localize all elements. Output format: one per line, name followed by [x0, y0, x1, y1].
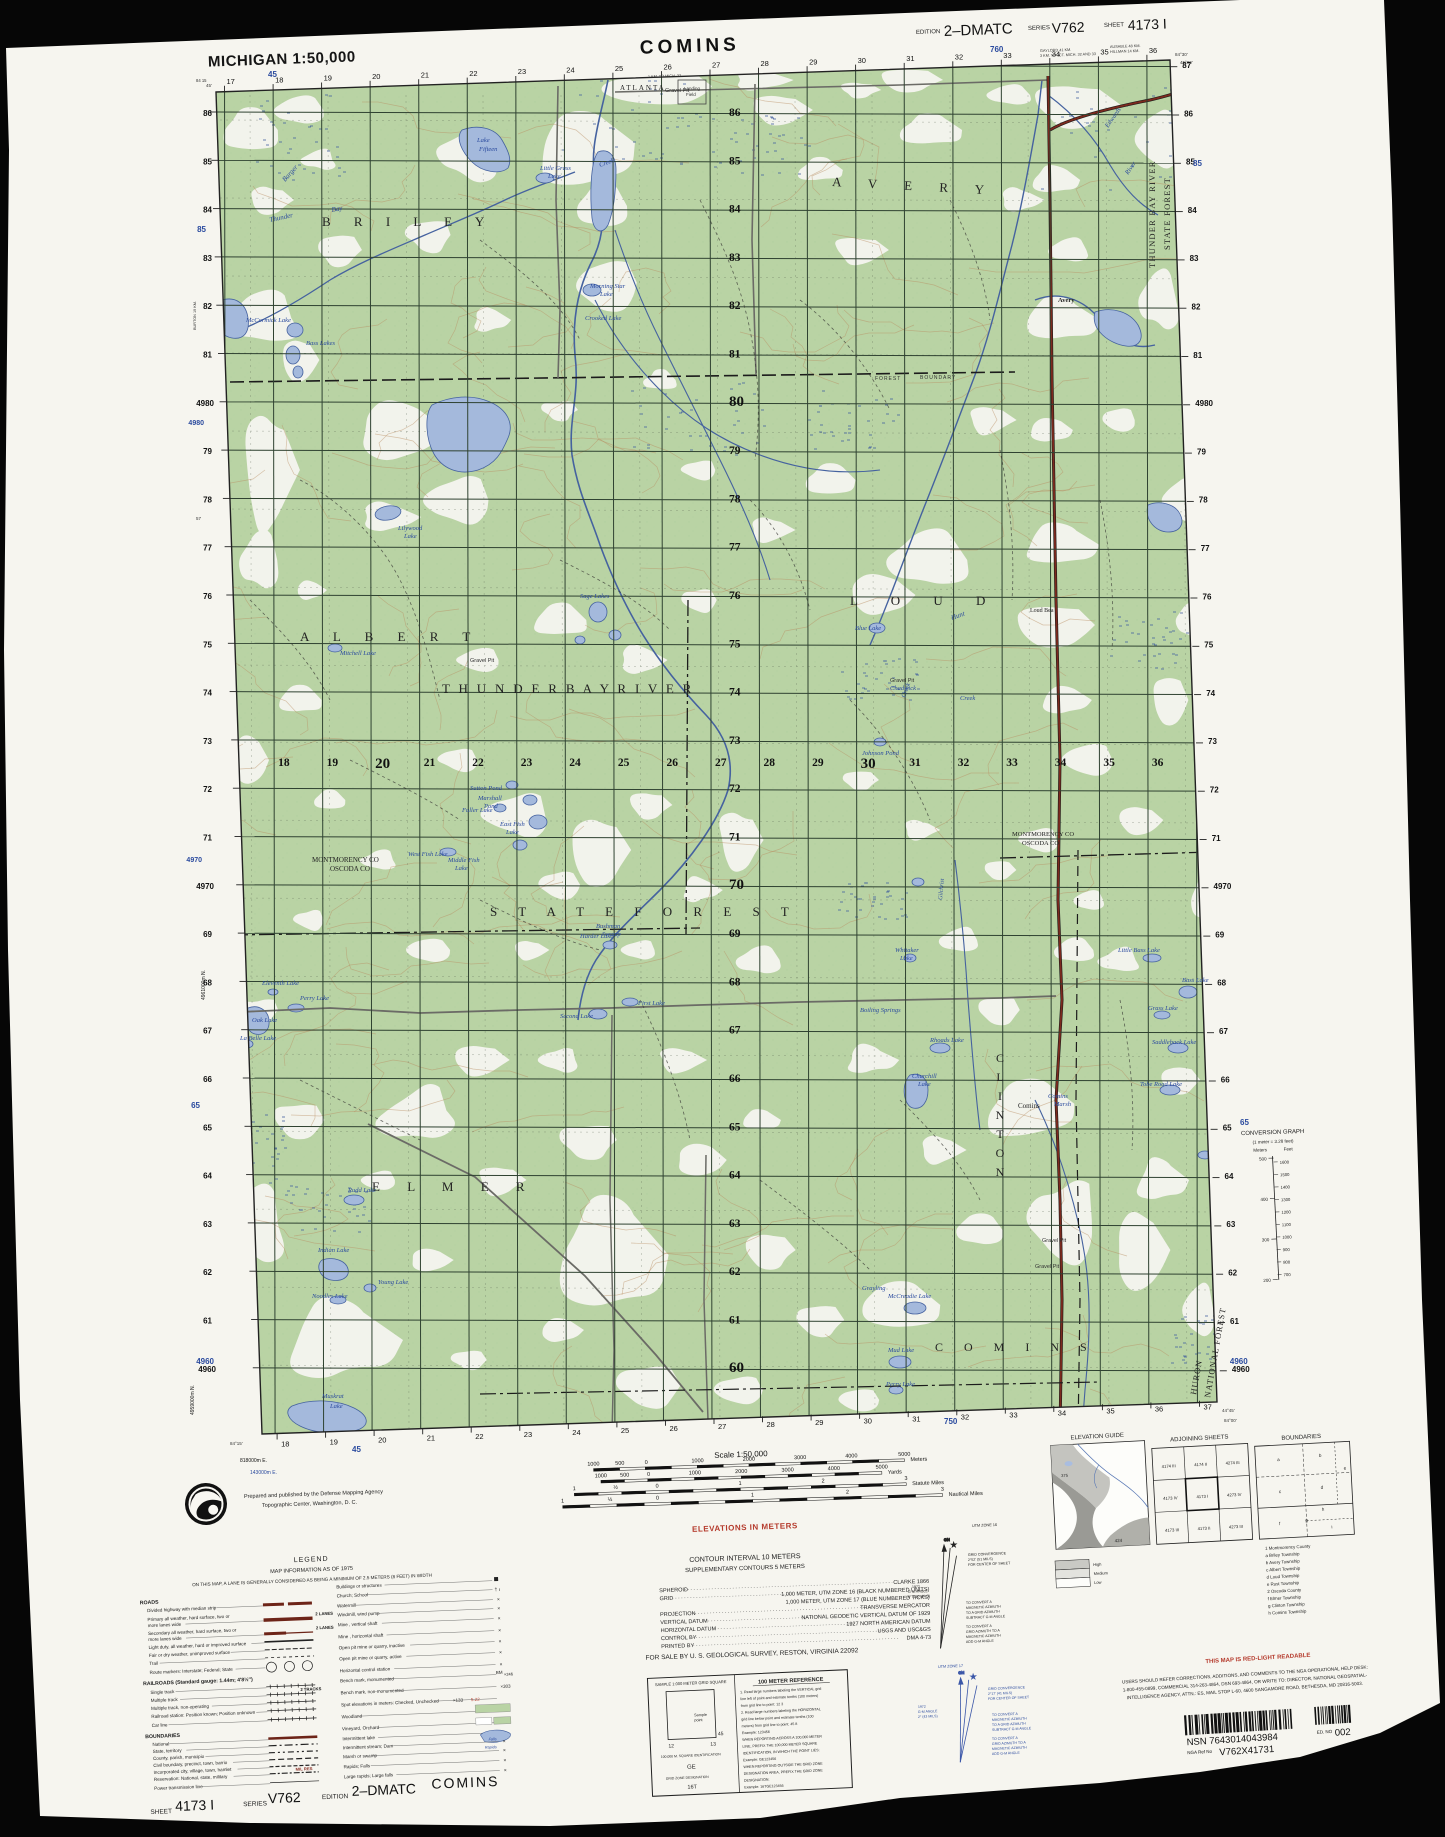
svg-text:×: ×	[503, 1758, 506, 1764]
svg-text:Second Lake: Second Lake	[560, 1013, 593, 1020]
svg-text:63: 63	[203, 1220, 212, 1229]
svg-text:Meters: Meters	[910, 1457, 927, 1464]
svg-text:ATLANTA: ATLANTA	[620, 84, 666, 92]
svg-text:COMINS: COMINS	[431, 1773, 500, 1792]
svg-text:65: 65	[1223, 1124, 1232, 1133]
svg-text:71: 71	[729, 832, 741, 844]
svg-text:85: 85	[203, 157, 212, 166]
svg-text:67: 67	[729, 1025, 741, 1037]
svg-text:23: 23	[521, 757, 533, 769]
svg-text:25: 25	[618, 757, 630, 769]
svg-text:4274 III: 4274 III	[1226, 1460, 1240, 1466]
svg-text:83: 83	[729, 252, 741, 264]
svg-text:Scale 1:50,000: Scale 1:50,000	[714, 1449, 768, 1460]
svg-text:High: High	[1093, 1562, 1101, 1567]
svg-text:45': 45'	[206, 83, 212, 88]
svg-text:20: 20	[378, 1436, 386, 1445]
svg-text:Watermill: Watermill	[337, 1603, 356, 1609]
svg-text:45: 45	[718, 1731, 724, 1737]
svg-text:B R I L E Y: B R I L E Y	[322, 214, 494, 229]
svg-text:73: 73	[729, 735, 741, 747]
svg-text:73: 73	[1208, 737, 1217, 746]
svg-text:64: 64	[203, 1172, 212, 1181]
svg-text:Gravel Pit: Gravel Pit	[1042, 1238, 1067, 1244]
svg-text:Little Grass: Little Grass	[539, 165, 571, 172]
svg-text:4000: 4000	[845, 1453, 857, 1459]
svg-text:25: 25	[615, 64, 623, 73]
svg-text:80: 80	[729, 394, 744, 410]
svg-text:Lake: Lake	[505, 829, 519, 836]
svg-text:×: ×	[499, 1639, 502, 1645]
svg-text:800: 800	[1283, 1259, 1291, 1264]
svg-text:60: 60	[729, 1360, 744, 1376]
svg-text:424: 424	[1115, 1538, 1123, 1543]
svg-text:83: 83	[203, 254, 212, 263]
svg-text:33: 33	[1003, 51, 1011, 60]
svg-text:1000: 1000	[691, 1458, 703, 1464]
svg-text:83: 83	[1190, 254, 1199, 263]
svg-text:82: 82	[1192, 303, 1201, 312]
svg-text:Boiling Springs: Boiling Springs	[860, 1007, 901, 1014]
svg-text:26: 26	[670, 1424, 678, 1433]
svg-text:Sample: Sample	[694, 1713, 707, 1718]
svg-text:35: 35	[1106, 1407, 1114, 1416]
svg-text:PROJECTION: PROJECTION	[660, 1611, 696, 1618]
svg-text:33: 33	[1006, 757, 1018, 769]
svg-text:75: 75	[203, 640, 212, 649]
svg-text:Lake: Lake	[403, 533, 417, 540]
svg-text:400: 400	[1260, 1197, 1268, 1202]
svg-text:2: 2	[846, 1490, 849, 1496]
svg-text:GE: GE	[687, 1764, 696, 1770]
svg-text:1000: 1000	[689, 1470, 701, 1476]
svg-text:4273 III: 4273 III	[1229, 1524, 1243, 1530]
svg-text:GN: GN	[944, 1537, 950, 1542]
svg-text:84°15': 84°15'	[230, 1441, 243, 1446]
svg-text:EDITION: EDITION	[322, 1793, 349, 1801]
svg-text:18: 18	[278, 757, 290, 769]
svg-text:DMA 4-73: DMA 4-73	[907, 1635, 932, 1642]
svg-text:13: 13	[710, 1741, 716, 1747]
svg-text:Mitchell Lake: Mitchell Lake	[339, 650, 376, 657]
svg-text:32: 32	[955, 53, 963, 62]
svg-text:×: ×	[497, 1597, 500, 1603]
svg-text:4970: 4970	[196, 882, 214, 891]
svg-text:Bass Lake: Bass Lake	[1182, 977, 1209, 984]
svg-text:86: 86	[203, 109, 212, 118]
svg-text:×246: ×246	[504, 1671, 514, 1676]
svg-text:82: 82	[729, 300, 741, 312]
svg-text:85: 85	[729, 155, 741, 167]
svg-text:Marshall: Marshall	[477, 795, 502, 802]
svg-text:75: 75	[729, 638, 741, 650]
svg-text:McCormick Lake: McCormick Lake	[245, 317, 291, 324]
svg-text:29: 29	[812, 757, 824, 769]
svg-text:Mud Lake: Mud Lake	[887, 1347, 914, 1354]
svg-text:76: 76	[1203, 592, 1212, 601]
svg-text:27: 27	[712, 61, 720, 70]
svg-text:LEGEND: LEGEND	[294, 1556, 329, 1564]
svg-text:500: 500	[1259, 1156, 1267, 1161]
svg-text:79: 79	[729, 445, 741, 457]
svg-text:SERIES: SERIES	[1028, 25, 1050, 32]
svg-text:½: ½	[613, 1484, 618, 1491]
svg-text:500: 500	[620, 1472, 629, 1478]
svg-text:69: 69	[1215, 930, 1224, 939]
svg-text:3: 3	[941, 1487, 944, 1493]
svg-text:×: ×	[503, 1748, 506, 1754]
svg-text:Sage Lakes: Sage Lakes	[580, 593, 610, 600]
svg-text:64: 64	[729, 1170, 741, 1182]
svg-text:1972: 1972	[912, 1585, 920, 1589]
svg-text:Indian Lake: Indian Lake	[317, 1247, 349, 1254]
svg-text:5.22: 5.22	[471, 1697, 480, 1702]
svg-text:74: 74	[729, 687, 741, 699]
svg-text:4980: 4980	[196, 399, 214, 408]
svg-text:32: 32	[961, 1412, 969, 1421]
svg-text:First Lake: First Lake	[637, 1000, 665, 1007]
svg-text:FOREST: FOREST	[875, 376, 901, 382]
svg-text:500: 500	[615, 1461, 624, 1467]
svg-text:Lake: Lake	[917, 1081, 931, 1088]
svg-text:Creek: Creek	[960, 695, 975, 702]
svg-text:BURTON 19 KM.: BURTON 19 KM.	[193, 301, 197, 330]
svg-text:Saddleback Lake: Saddleback Lake	[1152, 1039, 1196, 1046]
svg-text:4174 III: 4174 III	[1162, 1463, 1176, 1469]
svg-text:Crooked Lake: Crooked Lake	[585, 315, 622, 322]
svg-text:Little Bass Lake: Little Bass Lake	[1117, 947, 1160, 954]
svg-text:1: 1	[751, 1493, 754, 1499]
svg-text:21: 21	[427, 1434, 435, 1443]
svg-text:65: 65	[1240, 1118, 1249, 1127]
svg-text:61: 61	[729, 1315, 741, 1327]
svg-text:Nautical Miles: Nautical Miles	[948, 1491, 983, 1498]
svg-text:4961000m N.: 4961000m N.	[201, 970, 207, 1000]
svg-text:Young Lake: Young Lake	[378, 1279, 408, 1286]
svg-text:26: 26	[667, 757, 679, 769]
svg-text:E L M E R: E L M E R	[372, 1179, 537, 1194]
svg-text:point: point	[694, 1718, 703, 1722]
svg-text:78: 78	[729, 493, 741, 505]
svg-text:79: 79	[203, 447, 212, 456]
svg-text:Feet: Feet	[1284, 1146, 1294, 1151]
svg-text:×: ×	[499, 1650, 502, 1656]
svg-text:68: 68	[729, 976, 741, 988]
svg-text:22: 22	[472, 757, 484, 769]
svg-text:900: 900	[1283, 1247, 1291, 1252]
svg-text:4173 IV: 4173 IV	[1163, 1495, 1178, 1501]
svg-text:71: 71	[1212, 834, 1221, 843]
svg-text:66: 66	[1221, 1075, 1230, 1084]
svg-text:L: L	[996, 1070, 1003, 1084]
svg-text:Muskrat: Muskrat	[321, 1393, 344, 1400]
svg-text:Comins: Comins	[1018, 1102, 1040, 1110]
svg-text:2 LANES: 2 LANES	[316, 1625, 334, 1631]
svg-text:4960: 4960	[198, 1365, 216, 1374]
svg-text:Noodles Lake: Noodles Lake	[311, 1293, 348, 1300]
svg-text:24: 24	[569, 757, 581, 769]
svg-text:Grayling: Grayling	[862, 1285, 886, 1292]
svg-text:1000: 1000	[587, 1461, 599, 1467]
svg-text:1200: 1200	[1281, 1209, 1291, 1214]
svg-text:36: 36	[1155, 1405, 1163, 1414]
svg-text:×133: ×133	[453, 1697, 464, 1702]
svg-text:GRID: GRID	[659, 1596, 673, 1602]
svg-text:74: 74	[1206, 689, 1215, 698]
svg-text:Sutton Pond: Sutton Pond	[470, 785, 503, 792]
svg-text:Rapids: Rapids	[485, 1745, 497, 1749]
svg-text:30: 30	[861, 756, 876, 772]
svg-text:Morning Star: Morning Star	[589, 283, 626, 290]
svg-text:24: 24	[566, 66, 574, 75]
svg-text:O: O	[996, 1146, 1005, 1160]
svg-text:72: 72	[1210, 786, 1219, 795]
svg-text:Lake: Lake	[476, 137, 490, 144]
svg-text:Car line: Car line	[152, 1722, 168, 1728]
svg-text:1000: 1000	[595, 1473, 607, 1479]
svg-text:18: 18	[281, 1440, 289, 1449]
svg-text:4173 I: 4173 I	[175, 1796, 215, 1814]
svg-text:31: 31	[906, 54, 914, 63]
svg-text:Comins: Comins	[1048, 1093, 1068, 1100]
svg-text:21: 21	[421, 70, 429, 79]
svg-text:19: 19	[327, 757, 339, 769]
svg-text:750: 750	[944, 1417, 958, 1426]
svg-text:Gravel Pit: Gravel Pit	[890, 678, 915, 684]
svg-text:63: 63	[1226, 1220, 1235, 1229]
svg-text:81: 81	[203, 351, 212, 360]
svg-text:28: 28	[761, 59, 769, 68]
svg-text:Gravel Pit: Gravel Pit	[665, 88, 690, 94]
svg-text:SHEET: SHEET	[1104, 22, 1125, 29]
svg-text:Lake: Lake	[454, 865, 468, 872]
svg-text:0: 0	[645, 1460, 648, 1466]
svg-text:26: 26	[664, 62, 672, 71]
svg-text:79: 79	[1197, 447, 1206, 456]
svg-text:0: 0	[647, 1472, 650, 1478]
svg-text:Bushman: Bushman	[596, 923, 620, 930]
svg-text:½: ½	[608, 1496, 613, 1503]
svg-text:4173 II: 4173 II	[1197, 1526, 1210, 1532]
svg-text:68: 68	[1217, 979, 1226, 988]
svg-text:1: 1	[561, 1499, 564, 1505]
svg-text:COMINS: COMINS	[639, 34, 740, 58]
svg-text:V762: V762	[268, 1789, 302, 1806]
svg-text:West Fish Lake: West Fish Lake	[408, 851, 448, 858]
svg-text:34: 34	[1058, 1409, 1066, 1418]
svg-text:20: 20	[375, 756, 390, 772]
svg-text:61: 61	[1230, 1317, 1239, 1326]
svg-text:Chadwick: Chadwick	[890, 685, 916, 692]
svg-text:84: 84	[203, 206, 212, 215]
svg-text:12: 12	[668, 1743, 674, 1749]
svg-text:Tobe Road Lake: Tobe Road Lake	[1140, 1081, 1182, 1088]
svg-text:1100: 1100	[1282, 1222, 1292, 1227]
svg-text:Yards: Yards	[888, 1469, 902, 1475]
svg-text:76: 76	[203, 592, 212, 601]
svg-text:818000m E.: 818000m E.	[240, 1458, 267, 1464]
svg-text:† ı: † ı	[494, 1587, 500, 1593]
svg-text:81: 81	[729, 349, 741, 361]
svg-text:1300: 1300	[1281, 1197, 1291, 1202]
svg-text:4960: 4960	[1232, 1365, 1250, 1374]
svg-text:Fuller Lake: Fuller Lake	[461, 807, 493, 814]
svg-text:La Belle Lake: La Belle Lake	[239, 1035, 276, 1042]
svg-text:78: 78	[203, 495, 212, 504]
svg-text:30: 30	[858, 56, 866, 65]
svg-text:Loud Bea: Loud Bea	[1030, 608, 1054, 614]
svg-text:69: 69	[729, 928, 741, 940]
svg-text:84°30': 84°30'	[1175, 52, 1188, 57]
svg-text:74: 74	[203, 689, 212, 698]
svg-text:×: ×	[498, 1628, 501, 1634]
svg-text:85: 85	[1193, 159, 1202, 168]
svg-text:33: 33	[1009, 1410, 1017, 1419]
svg-text:27: 27	[718, 1422, 726, 1431]
svg-text:Oak Lake: Oak Lake	[252, 1017, 277, 1024]
svg-text:2 TRACKS: 2 TRACKS	[300, 1686, 321, 1692]
svg-text:21: 21	[424, 757, 436, 769]
svg-text:84 15: 84 15	[196, 78, 207, 83]
svg-text:2–DMATC: 2–DMATC	[351, 1780, 416, 1799]
svg-text:71: 71	[203, 834, 212, 843]
svg-text:4980: 4980	[1195, 399, 1213, 408]
svg-text:4959000m N.: 4959000m N.	[190, 1385, 196, 1415]
svg-text:77: 77	[1201, 544, 1210, 553]
svg-text:East Fish: East Fish	[499, 821, 525, 828]
svg-text:Bass Lakes: Bass Lakes	[306, 340, 336, 347]
svg-text:29: 29	[809, 57, 817, 66]
svg-text:2: 2	[821, 1478, 824, 1484]
svg-text:C O M I N S: C O M I N S	[935, 1340, 1096, 1354]
svg-text:L O U D: L O U D	[850, 593, 1000, 608]
svg-text:45: 45	[268, 70, 277, 79]
svg-text:64: 64	[1225, 1172, 1234, 1181]
svg-text:Swamp: Swamp	[602, 931, 622, 938]
svg-text:×: ×	[498, 1616, 501, 1622]
svg-text:Middle Fish: Middle Fish	[447, 857, 480, 864]
svg-text:1972: 1972	[918, 1705, 926, 1709]
svg-text:62: 62	[1228, 1269, 1237, 1278]
svg-text:65: 65	[729, 1121, 741, 1133]
svg-text:17: 17	[227, 77, 235, 86]
svg-text:1: 1	[573, 1486, 576, 1492]
svg-text:25: 25	[621, 1426, 629, 1435]
svg-text:72: 72	[203, 785, 212, 794]
svg-text:MONTMORENCY CO: MONTMORENCY CO	[312, 856, 379, 864]
svg-text:Low: Low	[1094, 1580, 1102, 1585]
svg-text:2 LANES: 2 LANES	[315, 1611, 333, 1617]
svg-text:0: 0	[656, 1496, 659, 1502]
svg-text:65: 65	[191, 1101, 200, 1110]
svg-text:Woodland: Woodland	[341, 1714, 362, 1720]
svg-text:V762: V762	[1052, 19, 1086, 36]
svg-text:23: 23	[524, 1430, 532, 1439]
svg-text:T H U N D E R B A Y R I: T H U N D E R B A Y R I V E R	[442, 681, 694, 696]
svg-text:Fifteen: Fifteen	[478, 146, 497, 153]
svg-text:ROADS: ROADS	[140, 1600, 159, 1607]
svg-text:4000: 4000	[828, 1466, 840, 1472]
svg-text:28: 28	[764, 757, 776, 769]
svg-text:1500: 1500	[1280, 1172, 1290, 1177]
svg-text:GN: GN	[958, 1670, 964, 1675]
svg-text:760: 760	[990, 45, 1004, 54]
svg-text:Blue Lake: Blue Lake	[855, 625, 881, 632]
svg-text:T: T	[996, 1127, 1004, 1141]
svg-text:44°45': 44°45'	[1222, 1408, 1235, 1413]
svg-text:McCreadie Lake: McCreadie Lake	[887, 1293, 931, 1300]
svg-text:Gravel Pit: Gravel Pit	[470, 658, 495, 664]
svg-text:84: 84	[729, 204, 741, 216]
svg-text:5000: 5000	[875, 1464, 887, 1470]
svg-text:57: 57	[196, 516, 202, 521]
svg-text:0: 0	[656, 1484, 659, 1490]
svg-text:69: 69	[203, 930, 212, 939]
svg-text:Lilywood: Lilywood	[397, 525, 423, 532]
svg-text:1000: 1000	[1282, 1234, 1292, 1239]
svg-text:63: 63	[729, 1218, 741, 1230]
svg-text:EDITION: EDITION	[916, 29, 941, 36]
svg-text:31: 31	[909, 757, 921, 769]
svg-text:70: 70	[729, 877, 744, 893]
svg-text:4174 II: 4174 II	[1194, 1462, 1207, 1468]
svg-text:23: 23	[518, 67, 526, 76]
svg-text:Marsh: Marsh	[1053, 1101, 1071, 1108]
svg-text:Lake: Lake	[599, 291, 613, 298]
svg-text:20: 20	[372, 72, 380, 81]
svg-text:2000: 2000	[743, 1457, 755, 1463]
svg-text:2000: 2000	[735, 1469, 747, 1475]
svg-text:81: 81	[1193, 351, 1202, 360]
svg-text:86: 86	[1184, 109, 1193, 118]
svg-text:★: ★	[970, 1673, 976, 1680]
svg-text:OSCODA CO: OSCODA CO	[330, 865, 370, 873]
svg-text:SPHEROID: SPHEROID	[659, 1587, 688, 1594]
svg-text:62: 62	[203, 1268, 212, 1277]
svg-text:Perry Lake: Perry Lake	[885, 1381, 915, 1388]
svg-text:300: 300	[1262, 1237, 1270, 1242]
svg-text:Churchill: Churchill	[912, 1073, 937, 1080]
svg-text:Eleventh Lake: Eleventh Lake	[261, 980, 299, 987]
svg-text:29: 29	[815, 1418, 823, 1427]
svg-text:MIL RES: MIL RES	[295, 1766, 312, 1772]
svg-text:22: 22	[475, 1432, 483, 1441]
svg-text:61: 61	[203, 1317, 212, 1326]
svg-text:4273 IV: 4273 IV	[1227, 1492, 1242, 1498]
svg-text:N: N	[996, 1165, 1005, 1179]
svg-text:76: 76	[729, 590, 741, 602]
svg-text:32: 32	[958, 757, 970, 769]
svg-text:45: 45	[352, 1445, 361, 1454]
svg-text:30: 30	[864, 1416, 872, 1425]
svg-text:BOUNDARY: BOUNDARY	[920, 375, 956, 381]
svg-text:Rudd Lake: Rudd Lake	[347, 1187, 376, 1194]
svg-text:1400: 1400	[1280, 1184, 1290, 1189]
svg-text:Whitaker: Whitaker	[895, 947, 919, 954]
svg-text:3: 3	[904, 1476, 907, 1482]
svg-text:×: ×	[504, 1768, 507, 1774]
svg-text:4970: 4970	[186, 857, 202, 864]
svg-text:143000m E.: 143000m E.	[250, 1470, 277, 1476]
svg-text:375: 375	[1061, 1473, 1069, 1478]
svg-text:27: 27	[715, 757, 727, 769]
svg-text:35: 35	[1100, 48, 1108, 57]
svg-text:National: National	[152, 1741, 169, 1747]
svg-text:★: ★	[951, 1542, 957, 1549]
svg-text:1600: 1600	[1280, 1159, 1290, 1164]
svg-text:77: 77	[729, 542, 741, 554]
svg-text:Trail: Trail	[149, 1661, 158, 1666]
